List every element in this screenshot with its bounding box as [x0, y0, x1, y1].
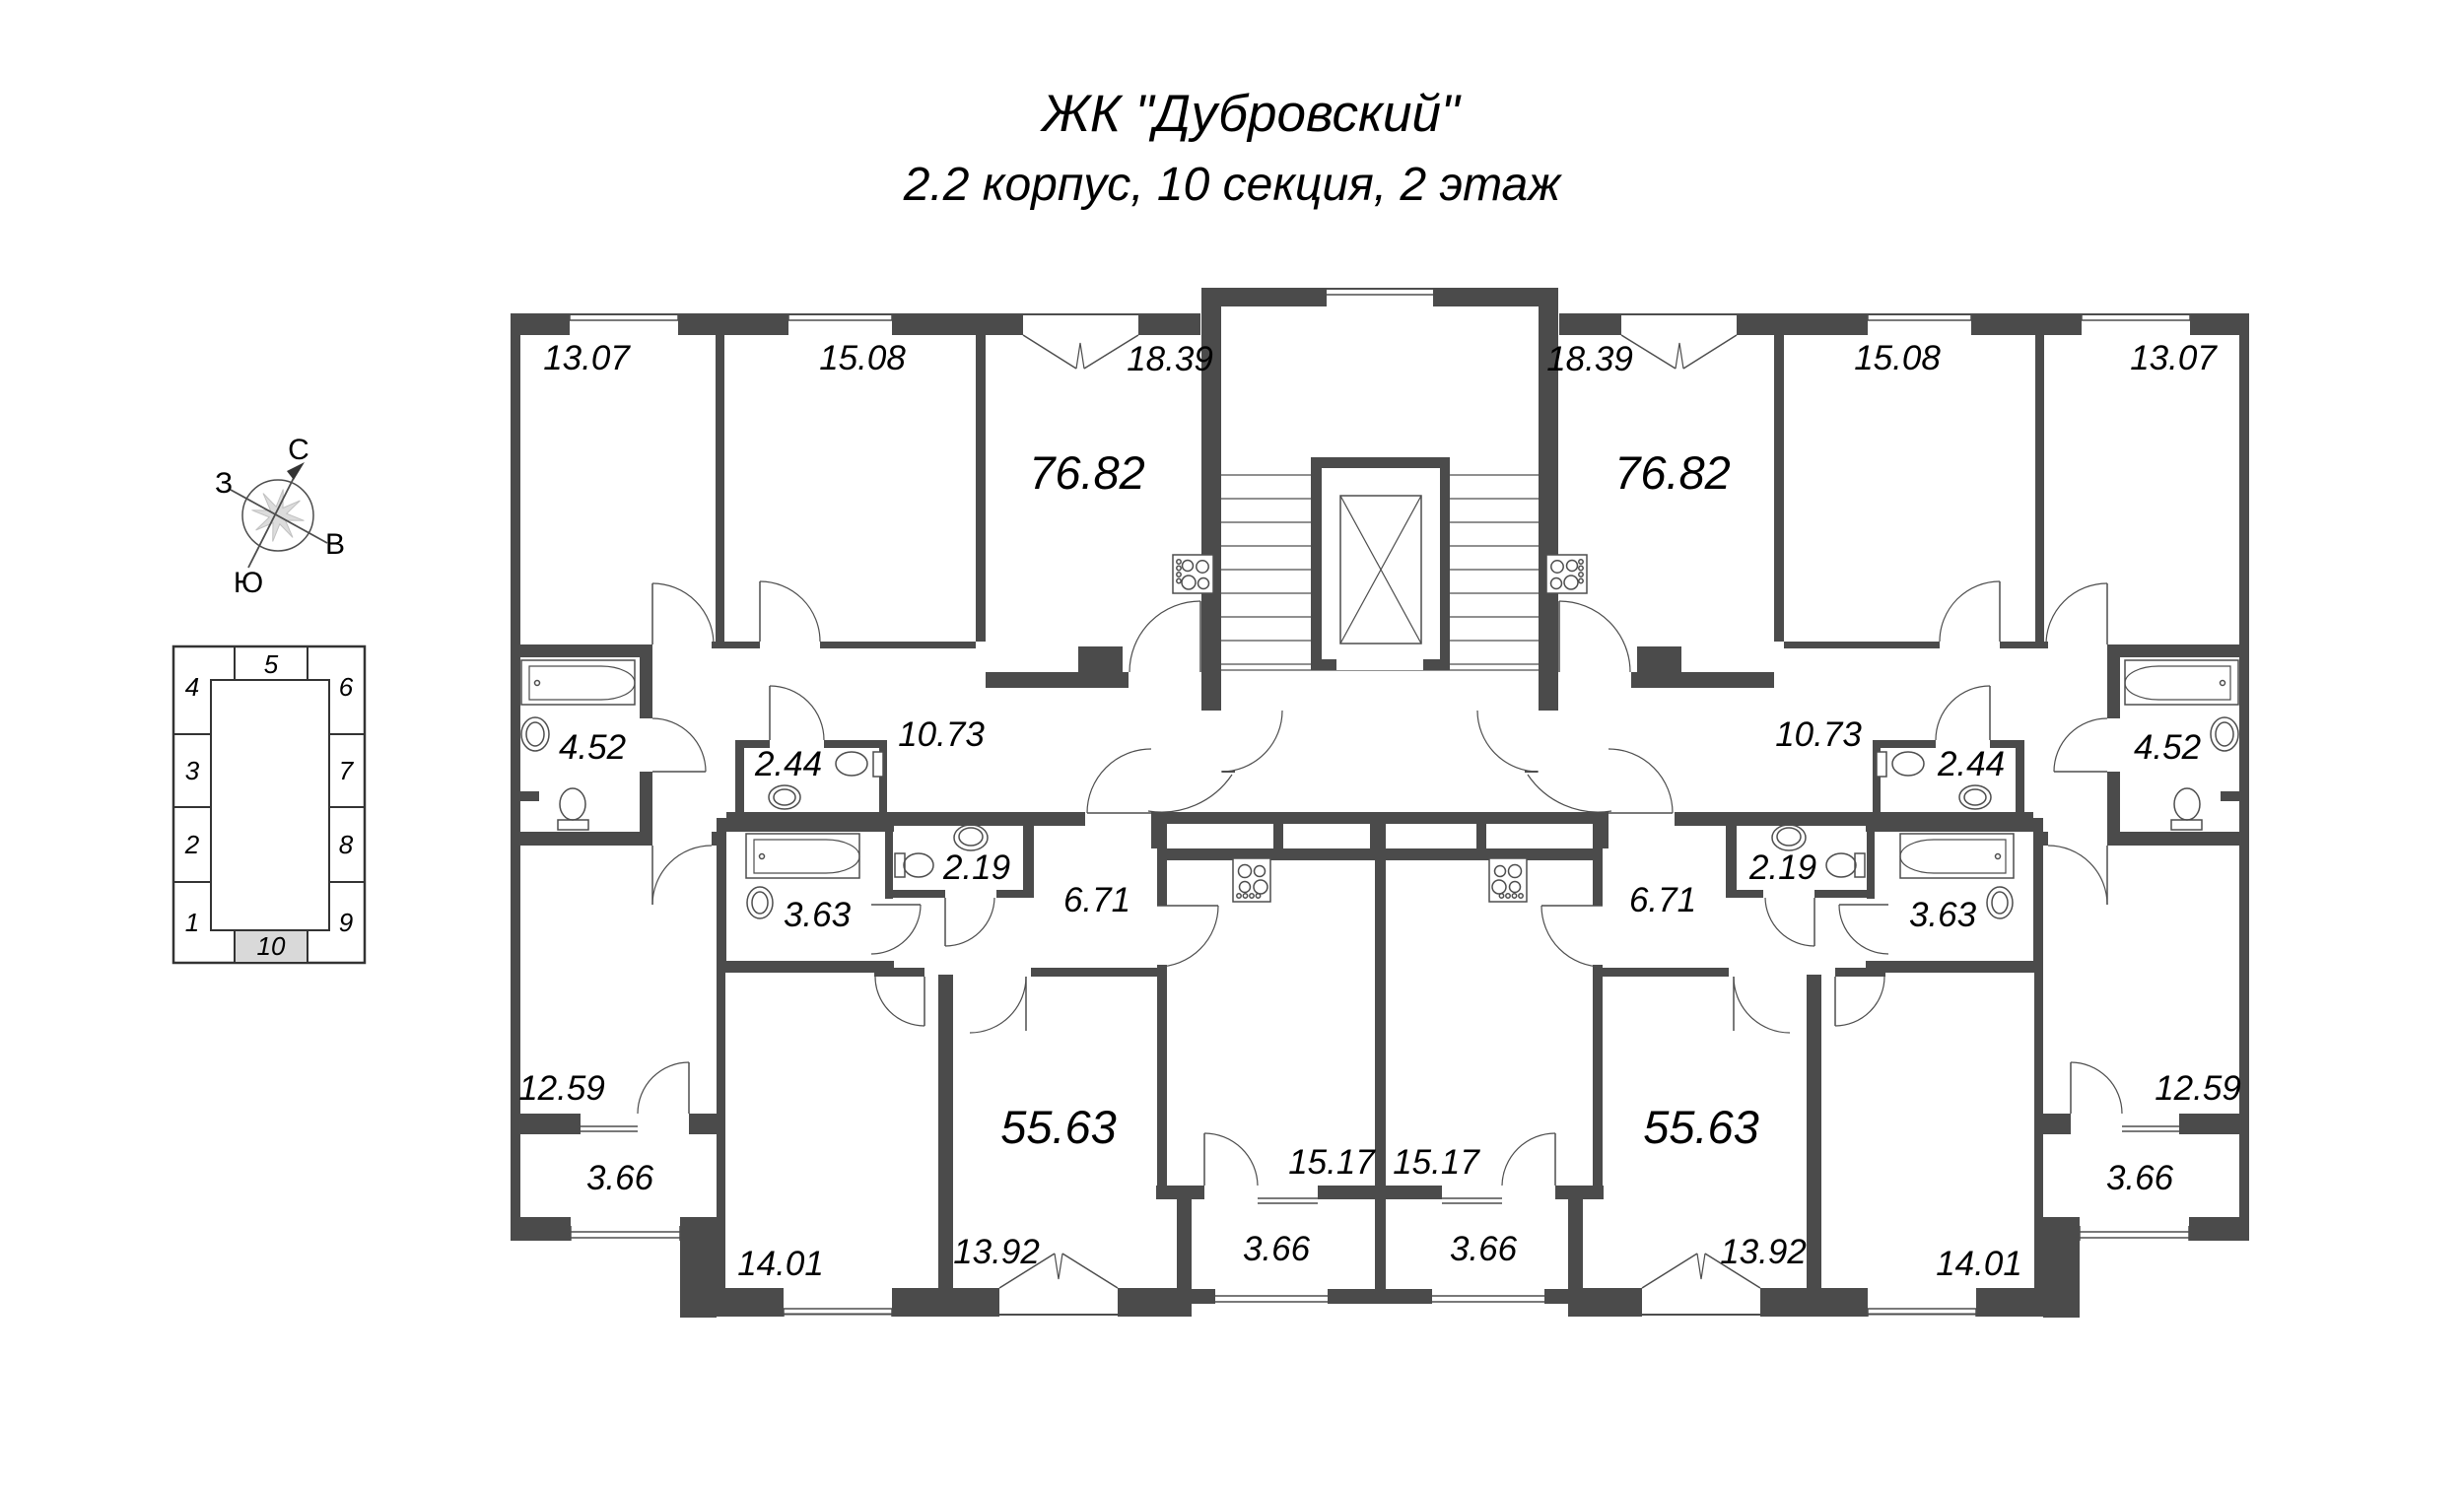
svg-text:Ю: Ю	[234, 567, 263, 599]
svg-text:4.52: 4.52	[559, 728, 626, 767]
svg-text:13.92: 13.92	[953, 1233, 1040, 1271]
svg-text:2.44: 2.44	[1937, 745, 2005, 783]
svg-text:15.08: 15.08	[819, 339, 906, 377]
svg-text:76.82: 76.82	[1614, 446, 1731, 499]
svg-text:2.19: 2.19	[942, 848, 1010, 887]
svg-text:6.71: 6.71	[1063, 881, 1130, 919]
svg-text:10: 10	[257, 931, 286, 961]
svg-text:2.44: 2.44	[754, 745, 822, 783]
svg-text:76.82: 76.82	[1029, 446, 1145, 499]
svg-text:10.73: 10.73	[1775, 715, 1862, 754]
svg-text:5: 5	[264, 649, 279, 679]
svg-text:12.59: 12.59	[518, 1069, 605, 1108]
svg-text:55.63: 55.63	[1000, 1101, 1117, 1153]
svg-text:С: С	[288, 434, 309, 466]
svg-text:18.39: 18.39	[1127, 340, 1213, 378]
svg-text:15.17: 15.17	[1393, 1143, 1480, 1182]
svg-text:3.66: 3.66	[2106, 1159, 2174, 1197]
svg-text:1: 1	[185, 908, 199, 937]
svg-text:13.92: 13.92	[1720, 1233, 1807, 1271]
svg-text:3.66: 3.66	[1243, 1230, 1311, 1268]
svg-text:55.63: 55.63	[1643, 1101, 1759, 1153]
svg-text:7: 7	[339, 756, 355, 785]
svg-text:4.52: 4.52	[2134, 728, 2201, 767]
svg-text:2.2 корпус, 10 секция, 2 этаж: 2.2 корпус, 10 секция, 2 этаж	[903, 159, 1563, 211]
svg-text:3: 3	[185, 756, 200, 785]
svg-text:2.19: 2.19	[1748, 848, 1816, 887]
svg-text:3.63: 3.63	[1909, 896, 1977, 934]
svg-text:12.59: 12.59	[2155, 1069, 2241, 1108]
svg-text:6.71: 6.71	[1629, 881, 1696, 919]
svg-text:3.66: 3.66	[1450, 1230, 1518, 1268]
svg-text:3.63: 3.63	[784, 896, 852, 934]
svg-text:2: 2	[184, 830, 200, 859]
svg-text:14.01: 14.01	[737, 1245, 824, 1283]
svg-text:18.39: 18.39	[1546, 340, 1633, 378]
svg-text:13.07: 13.07	[543, 339, 631, 377]
svg-text:8: 8	[339, 830, 354, 859]
svg-text:3.66: 3.66	[586, 1159, 654, 1197]
svg-text:4: 4	[185, 672, 199, 702]
svg-text:В: В	[325, 528, 345, 561]
svg-text:15.08: 15.08	[1854, 339, 1941, 377]
svg-text:6: 6	[339, 672, 354, 702]
svg-text:14.01: 14.01	[1936, 1245, 2022, 1283]
svg-text:13.07: 13.07	[2130, 339, 2218, 377]
svg-text:10.73: 10.73	[898, 715, 985, 754]
svg-text:ЖК "Дубровский": ЖК "Дубровский"	[1039, 85, 1462, 143]
svg-text:9: 9	[339, 908, 353, 937]
svg-text:15.17: 15.17	[1288, 1143, 1376, 1182]
svg-text:З: З	[215, 467, 233, 500]
